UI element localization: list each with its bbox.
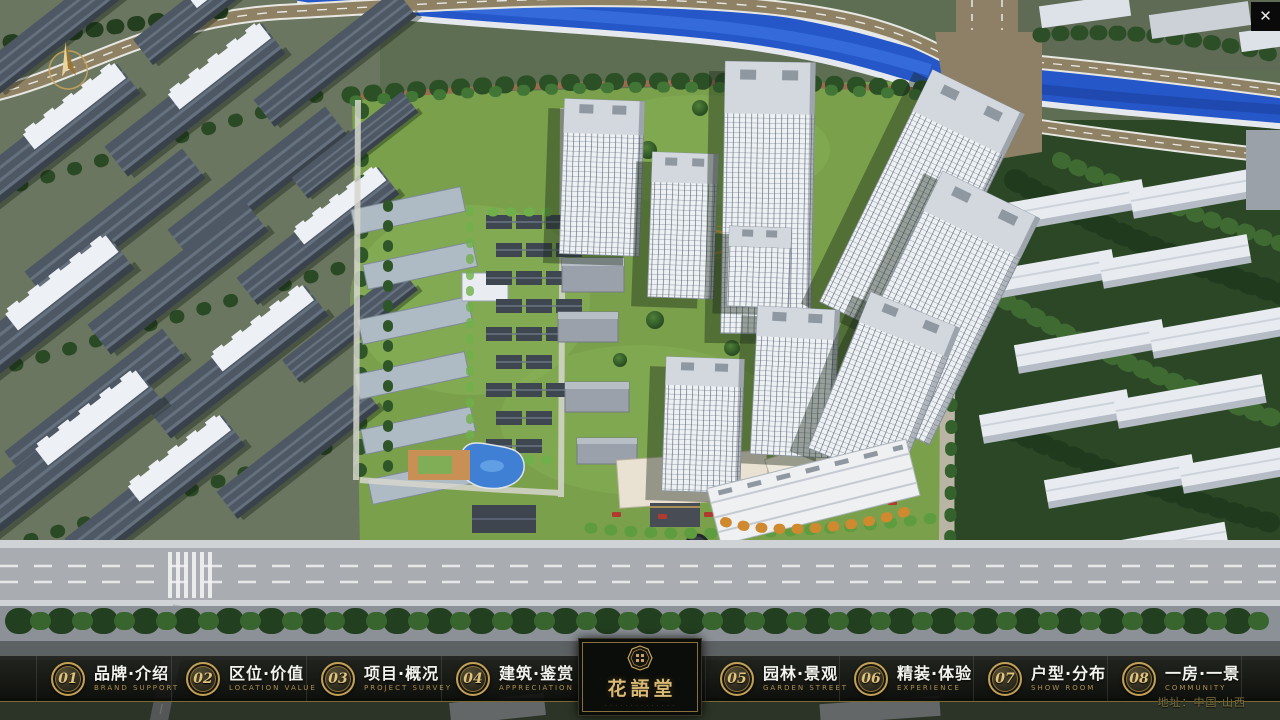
project-tagline: · · · · · · · · · · · · · · xyxy=(605,704,675,709)
item-number-badge: 06 xyxy=(854,662,888,696)
nav-label-en: GARDEN STREET xyxy=(763,684,839,692)
nav-label-zh: 一房·一景 xyxy=(1165,665,1240,683)
nav-label-en: EXPERIENCE xyxy=(897,684,972,692)
nav-label-zh: 项目·概况 xyxy=(364,665,441,683)
nav-label-zh: 品牌·介绍 xyxy=(94,665,171,683)
nav-label-en: PROJECT SURVEY xyxy=(364,684,441,692)
item-number-badge: 08 xyxy=(1122,662,1156,696)
logo-frame: 花語堂 · · · · · · · · · · · · · · xyxy=(582,642,698,712)
item-number-badge: 01 xyxy=(51,662,85,696)
nav-label-zh: 建筑·鉴赏 xyxy=(499,665,574,683)
nav-item-architecture[interactable]: 04 建筑·鉴赏 APPRECIATION xyxy=(441,656,576,701)
item-number-badge: 05 xyxy=(720,662,754,696)
item-number-badge: 03 xyxy=(321,662,355,696)
nav-label-zh: 精装·体验 xyxy=(897,665,972,683)
tower xyxy=(712,225,791,316)
tower xyxy=(631,151,718,309)
nav-label-en: COMMUNITY xyxy=(1165,684,1240,692)
nav-item-location[interactable]: 02 区位·价值 LOCATION VALUE xyxy=(171,656,306,701)
tower xyxy=(543,98,645,266)
nav-item-project[interactable]: 03 项目·概况 PROJECT SURVEY xyxy=(306,656,441,701)
nav-label-zh: 园林·景观 xyxy=(763,665,839,683)
project-logo[interactable]: 花語堂 · · · · · · · · · · · · · · xyxy=(578,638,702,716)
nav-label-en: BRAND SUPPORT xyxy=(94,684,171,692)
address-text: 地址：中国·山西 xyxy=(1158,694,1247,710)
nav-item-garden[interactable]: 05 园林·景观 GARDEN STREET xyxy=(705,656,839,701)
project-name: 花語堂 xyxy=(603,674,676,701)
nav-item-floorplan[interactable]: 07 户型·分布 SHOW ROOM xyxy=(973,656,1107,701)
compass-icon xyxy=(39,35,97,98)
seal-emblem-icon xyxy=(627,645,653,671)
close-button[interactable]: ✕ xyxy=(1251,2,1280,31)
aerial-render xyxy=(0,0,1280,720)
nav-item-brand[interactable]: 01 品牌·介绍 BRAND SUPPORT xyxy=(36,656,171,701)
nav-label-zh: 户型·分布 xyxy=(1031,665,1106,683)
nav-label-zh: 区位·价值 xyxy=(229,665,306,683)
item-number-badge: 07 xyxy=(988,662,1022,696)
nav-item-interior[interactable]: 06 精装·体验 EXPERIENCE xyxy=(839,656,973,701)
nav-left-group: 01 品牌·介绍 BRAND SUPPORT 02 区位·价值 LOCATION… xyxy=(36,656,576,701)
nav-label-en: APPRECIATION xyxy=(499,684,574,692)
item-number-badge: 04 xyxy=(456,662,490,696)
nav-label-en: LOCATION VALUE xyxy=(229,684,306,692)
presentation-screen: ✕ 01 品牌·介绍 BRAND SUPPORT 02 区位·价值 LOCATI… xyxy=(0,0,1280,720)
item-number-badge: 02 xyxy=(186,662,220,696)
tower xyxy=(645,356,744,503)
nav-label-en: SHOW ROOM xyxy=(1031,684,1106,692)
